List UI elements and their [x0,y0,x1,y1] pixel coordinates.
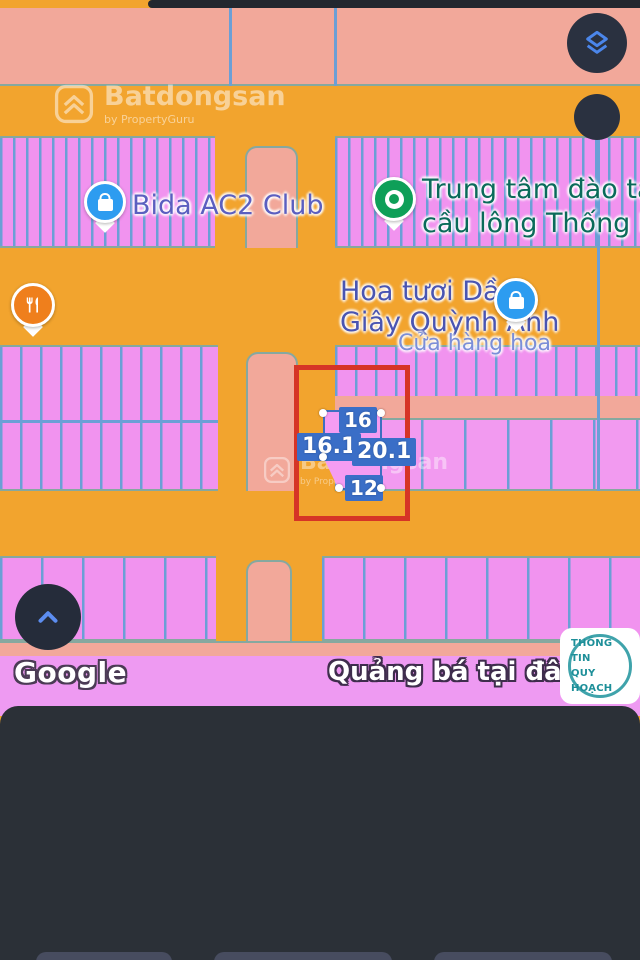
measurement-label-top: 16 [339,407,377,433]
dark-marker-circle [574,94,620,140]
map-block [246,560,292,641]
poi-label-badminton[interactable]: Trung tâm đào tạo cầu lông Thống Nhất [422,173,640,241]
status-bar-strip [148,0,640,8]
poi-label-flower[interactable]: Hoa tươi Dầu Giây Quỳnh Anh [340,276,510,338]
poi-pin-bida[interactable] [84,181,126,223]
restaurant-icon [23,295,43,315]
parcel-corner-dot [319,453,327,461]
poi-label-bida[interactable]: Bida AC2 Club [132,190,324,221]
parcel-corner-dot [377,409,385,417]
screen: Batdongsan by PropertyGuru Batdongsan by… [0,0,640,960]
watermark-brand: Batdongsan [104,83,286,110]
batdongsan-logo-icon [52,82,96,126]
map-canvas[interactable]: Batdongsan by PropertyGuru Batdongsan by… [0,0,640,706]
expand-button[interactable] [15,584,81,650]
action-button-stub[interactable] [214,952,392,960]
parcel-corner-dot [335,484,343,492]
parcel-line [229,8,232,86]
parcel-corner-dot [377,484,385,492]
poi-label-line: Trung tâm đào tạo [422,173,640,207]
shopping-bag-icon [509,297,524,309]
poi-label-line: Hoa tươi Dầu [340,276,510,307]
watermark-sub: by PropertyGuru [104,114,286,125]
parcel-corner-dot [319,409,327,417]
map-block [0,8,640,86]
planning-info-stamp[interactable]: THÔNG TIN QUY HOẠCH [560,628,640,704]
parcel-line [334,8,337,86]
action-button-stub[interactable] [434,952,612,960]
action-button-stub[interactable] [36,952,172,960]
watermark-top-left: Batdongsan by PropertyGuru [52,82,286,126]
poi-pin-flower[interactable] [494,278,538,322]
poi-label-line: cầu lông Thống Nhất [422,207,640,241]
chevron-up-icon [33,602,63,632]
parcel-line [0,420,218,423]
stamp-line: QUY HOẠCH [571,666,629,696]
layers-icon [581,27,613,59]
poi-pin-restaurant[interactable] [11,283,55,327]
layers-button[interactable] [567,13,627,73]
map-block [0,345,218,491]
shopping-bag-icon [98,199,113,211]
poi-sublabel-flower: Cửa hàng hoa [398,331,532,356]
map-block [0,641,640,656]
parcel-info-panel[interactable]: Tờ 18 Thửa 1414, Diện tích 312m² Dầu Giâ… [0,706,640,960]
poi-pin-badminton[interactable] [372,177,416,221]
google-logo: Google [14,656,127,689]
stamp-line: THÔNG TIN [571,636,629,666]
batdongsan-logo-icon [262,455,292,485]
green-dot-icon [385,190,404,209]
measurement-label-right: 20.1 [352,438,416,466]
